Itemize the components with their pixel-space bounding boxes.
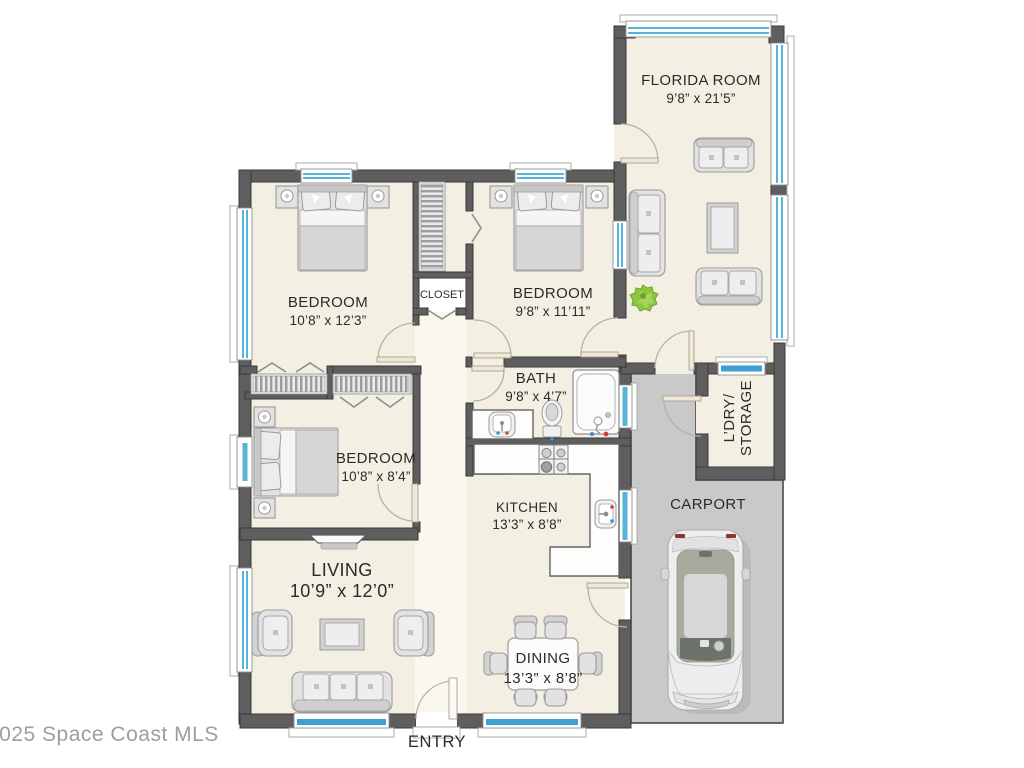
svg-text:ENTRY: ENTRY [408,733,466,751]
svg-text:13’3” x 8’8”: 13’3” x 8’8” [492,517,561,532]
svg-text:CARPORT: CARPORT [670,496,746,513]
svg-text:CLOSET: CLOSET [420,289,464,301]
svg-text:9’8” x 4’7”: 9’8” x 4’7” [505,389,566,404]
svg-text:9’8” x 21’5”: 9’8” x 21’5” [666,91,735,106]
svg-text:BEDROOM: BEDROOM [513,285,593,302]
svg-text:2025 Space Coast MLS: 2025 Space Coast MLS [0,723,219,746]
svg-text:L’DRY/: L’DRY/ [721,393,738,442]
svg-text:10’8” x 12’3”: 10’8” x 12’3” [290,313,367,328]
svg-text:BEDROOM: BEDROOM [288,294,368,311]
svg-text:BEDROOM: BEDROOM [336,450,416,467]
svg-text:LIVING: LIVING [311,560,372,580]
svg-text:BATH: BATH [516,370,557,387]
svg-text:13’3” x 8’8”: 13’3” x 8’8” [503,670,582,687]
svg-text:10’8” x 8’4”: 10’8” x 8’4” [341,469,410,484]
svg-text:FLORIDA ROOM: FLORIDA ROOM [641,72,761,89]
svg-text:STORAGE: STORAGE [738,380,755,456]
svg-text:10’9” x 12’0”: 10’9” x 12’0” [290,581,394,601]
svg-text:KITCHEN: KITCHEN [496,500,558,515]
svg-text:9’8” x 11’11”: 9’8” x 11’11” [516,304,591,319]
svg-text:DINING: DINING [516,650,571,667]
